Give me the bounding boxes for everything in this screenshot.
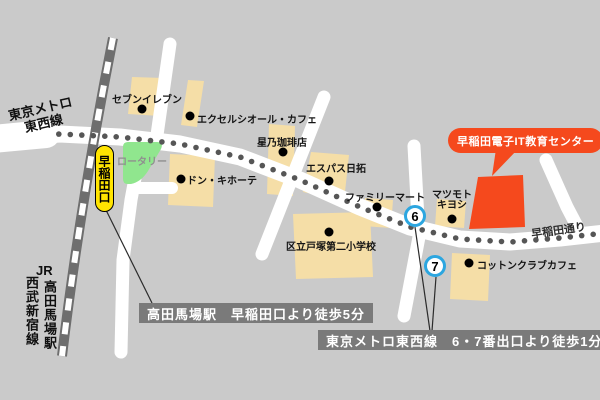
label-cotton-club-cafe: コットンクラブカフェ <box>477 257 577 272</box>
metro-dot <box>270 167 276 173</box>
metro-dot <box>125 135 131 141</box>
poi-dot-excelsior-cafe <box>186 112 195 121</box>
label-excelsior-cafe: エクセルシオール・カフェ <box>197 111 317 126</box>
metro-dot <box>365 208 371 214</box>
metro-dot <box>442 233 448 239</box>
metro-dot <box>79 132 85 138</box>
metro-dot <box>136 136 142 142</box>
poi-dot-espace-nittaku <box>325 177 334 186</box>
metro-dot <box>281 171 287 177</box>
metro-dot <box>487 238 493 244</box>
connector-exit-7 <box>432 277 436 331</box>
label-espace-nittaku: エスパス日拓 <box>306 160 366 175</box>
metro-dot <box>159 139 165 145</box>
metro-dot <box>113 134 119 140</box>
metro-dot <box>522 238 528 244</box>
metro-dot <box>249 159 255 165</box>
note-walk-from-metro: 東京メトロ東西線 6・7番出口より徒歩1分 <box>318 330 600 350</box>
metro-dot <box>193 145 199 151</box>
bubble-tail <box>492 149 518 176</box>
label-matsumoto-kiyoshi-line2: キヨシ <box>432 201 472 211</box>
waseda-exit-badge-text: 早稲田口 <box>96 155 113 203</box>
metro-dot <box>323 189 329 195</box>
metro-dot <box>238 155 244 161</box>
metro-dot <box>398 220 404 226</box>
road-northeast <box>546 160 578 228</box>
metro-dot <box>204 147 210 153</box>
waseda-exit-badge: 早稲田口 <box>95 145 114 212</box>
poi-dot-don-quijote <box>177 175 186 184</box>
metro-dot <box>499 239 505 245</box>
label-don-quijote: ドン・キホーテ <box>187 172 257 187</box>
label-seibu-shinjuku-line: 西武新宿線 <box>22 276 41 346</box>
exit-circle-7: 7 <box>424 255 446 277</box>
building-destination <box>469 175 525 229</box>
metro-dot <box>590 232 596 238</box>
metro-dot <box>148 138 154 144</box>
metro-dot <box>334 194 340 200</box>
label-family-mart: ファミリーマート <box>345 189 425 204</box>
metro-dot <box>453 235 459 241</box>
metro-dot <box>102 133 108 139</box>
label-rotary: ロータリー <box>117 153 167 168</box>
metro-dot <box>419 227 425 233</box>
metro-dot <box>216 150 222 156</box>
metro-dot <box>68 132 74 138</box>
metro-dot <box>302 180 308 186</box>
access-map: セブンイレブン エクセルシオール・カフェ 星乃珈琲店 ドン・キホーテ エスパス日… <box>0 0 600 400</box>
metro-dot <box>464 237 470 243</box>
metro-dot <box>476 237 482 243</box>
label-seven-eleven: セブンイレブン <box>112 91 182 106</box>
metro-dot <box>182 142 188 148</box>
metro-dot <box>313 184 319 190</box>
destination-bubble: 早稲田電子IT教育センター <box>448 128 600 153</box>
label-matsumoto-kiyoshi: マツモト キヨシ <box>432 191 472 211</box>
metro-dot <box>292 175 298 181</box>
metro-dot <box>510 239 516 245</box>
metro-dot <box>376 212 382 218</box>
metro-dot <box>56 131 62 137</box>
metro-dot <box>171 140 177 146</box>
exit-circle-6: 6 <box>404 205 426 227</box>
poi-dot-cotton-club-cafe <box>465 259 474 268</box>
metro-dot <box>91 133 97 139</box>
poi-dot-matsumoto-kiyoshi <box>448 215 457 224</box>
metro-dot <box>227 152 233 158</box>
metro-dot <box>431 230 437 236</box>
label-elementary-school: 区立戸塚第二小学校 <box>286 238 376 253</box>
poi-dot-elementary-school <box>325 228 334 237</box>
note-walk-from-jr: 高田馬場駅 早稲田口より徒歩5分 <box>139 303 373 323</box>
metro-dot <box>387 216 393 222</box>
label-hoshino-coffee: 星乃珈琲店 <box>257 134 307 149</box>
metro-dot <box>260 163 266 169</box>
label-takadanobaba-station: 高田馬場駅 <box>40 280 59 350</box>
